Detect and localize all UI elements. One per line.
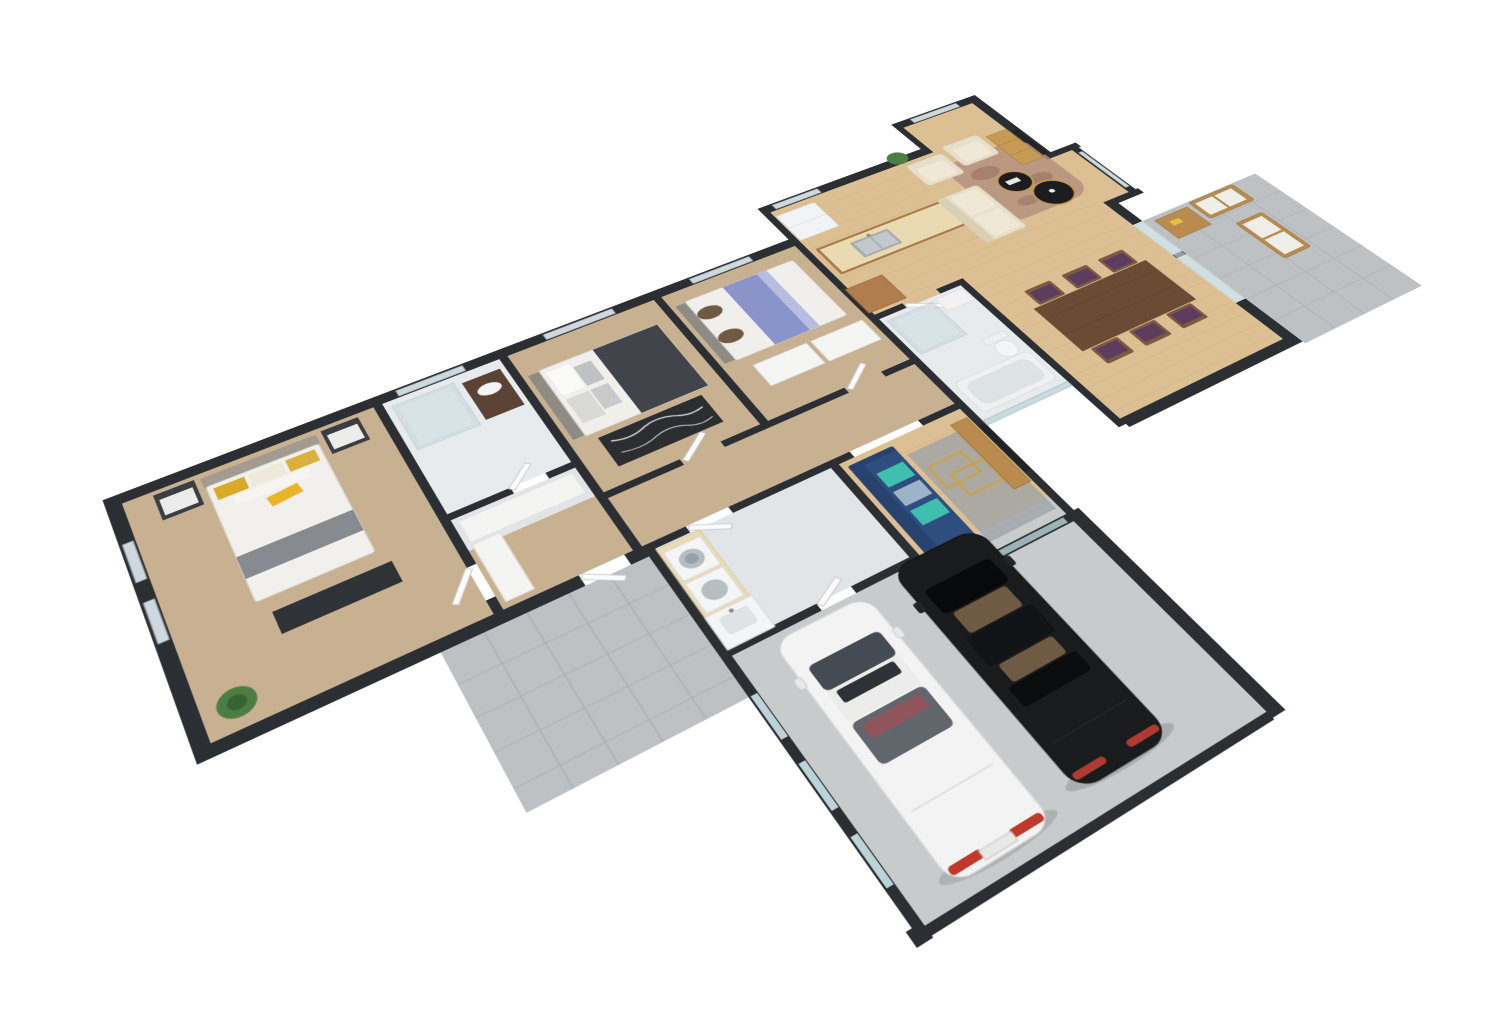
floorplan-svg (0, 35, 1500, 1023)
tilted-floorplan (0, 35, 1500, 1023)
floorplan-render-canvas: { "meta": { "title": "3D Floor Plan Rend… (0, 0, 1500, 1023)
front-door (581, 574, 626, 581)
